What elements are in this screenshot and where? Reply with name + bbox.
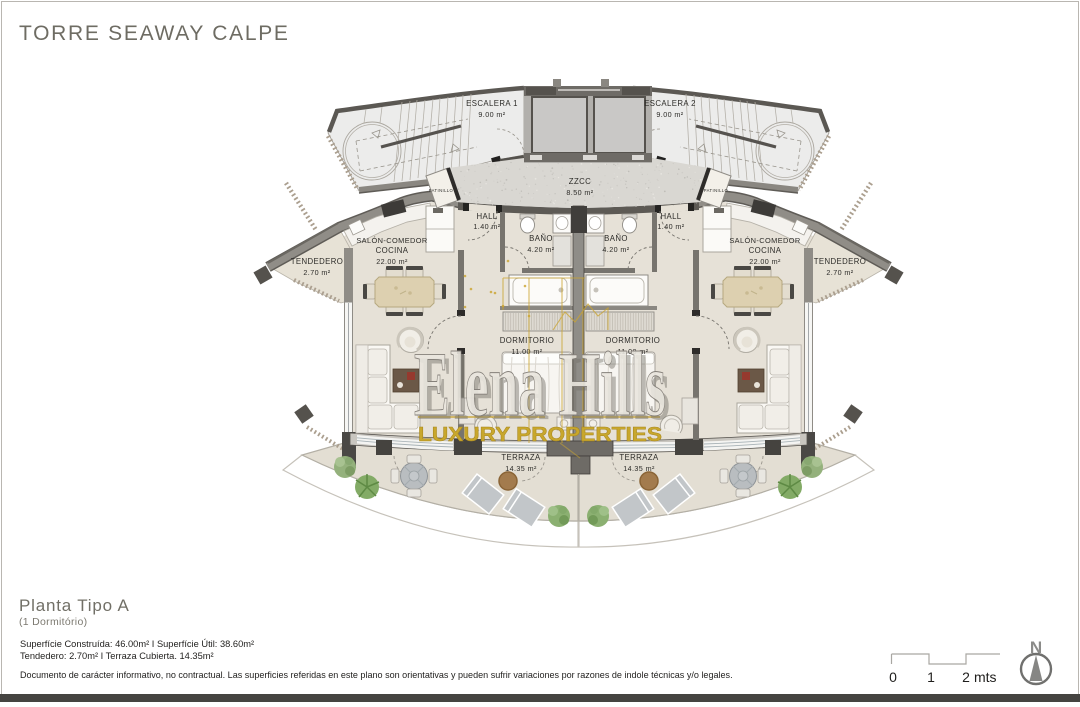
- svg-text:TORRE SEAWAY CALPE: TORRE SEAWAY CALPE: [19, 22, 290, 45]
- svg-text:mts: mts: [974, 669, 997, 685]
- svg-text:ZZCC: ZZCC: [569, 177, 591, 186]
- svg-text:0: 0: [889, 669, 897, 685]
- svg-text:HALL: HALL: [476, 212, 497, 221]
- svg-text:2: 2: [962, 669, 970, 685]
- svg-text:22.00 m²: 22.00 m²: [376, 257, 408, 266]
- svg-text:PATINILLO: PATINILLO: [429, 188, 454, 193]
- svg-text:BAÑO: BAÑO: [529, 234, 553, 243]
- svg-text:ESCALERA 2: ESCALERA 2: [644, 99, 696, 108]
- svg-text:(1 Dormitório): (1 Dormitório): [19, 616, 87, 628]
- svg-text:SALÓN-COMEDOR: SALÓN-COMEDOR: [356, 236, 427, 245]
- svg-text:COCINA: COCINA: [376, 246, 409, 255]
- svg-text:2.70 m²: 2.70 m²: [826, 268, 853, 277]
- svg-text:Documento de carácter informat: Documento de carácter informativo, no co…: [20, 670, 733, 680]
- svg-text:TERRAZA: TERRAZA: [619, 453, 659, 462]
- svg-text:14.35 m²: 14.35 m²: [623, 464, 655, 473]
- svg-text:LUXURY PROPERTIES: LUXURY PROPERTIES: [418, 424, 662, 446]
- svg-text:HALL: HALL: [660, 212, 681, 221]
- svg-text:PATINILLO: PATINILLO: [704, 188, 729, 193]
- svg-text:COCINA: COCINA: [749, 246, 782, 255]
- svg-text:22.00 m²: 22.00 m²: [749, 257, 781, 266]
- svg-text:2.70 m²: 2.70 m²: [303, 268, 330, 277]
- svg-text:1: 1: [927, 669, 935, 685]
- svg-text:Elena Hills: Elena Hills: [414, 333, 666, 435]
- svg-text:BAÑO: BAÑO: [604, 234, 628, 243]
- svg-text:1.40 m²: 1.40 m²: [473, 222, 500, 231]
- svg-text:TERRAZA: TERRAZA: [501, 453, 541, 462]
- svg-text:ESCALERA 1: ESCALERA 1: [466, 99, 518, 108]
- svg-text:Superfície Construída: 46.00m²: Superfície Construída: 46.00m² I Superfí…: [20, 639, 254, 649]
- svg-text:Planta Tipo A: Planta Tipo A: [19, 596, 130, 615]
- svg-text:1.40 m²: 1.40 m²: [657, 222, 684, 231]
- svg-text:4.20 m²: 4.20 m²: [602, 245, 629, 254]
- svg-text:9.00 m²: 9.00 m²: [478, 110, 505, 119]
- svg-text:TENDEDERO: TENDEDERO: [814, 257, 867, 266]
- svg-text:9.00 m²: 9.00 m²: [656, 110, 683, 119]
- svg-text:SALÓN-COMEDOR: SALÓN-COMEDOR: [729, 236, 800, 245]
- svg-text:TENDEDERO: TENDEDERO: [291, 257, 344, 266]
- svg-text:8.50 m²: 8.50 m²: [566, 188, 593, 197]
- svg-text:Tendedero: 2.70m² I Terraza Cu: Tendedero: 2.70m² I Terraza Cubierta. 14…: [20, 651, 214, 661]
- svg-text:14.35 m²: 14.35 m²: [505, 464, 537, 473]
- svg-text:4.20 m²: 4.20 m²: [527, 245, 554, 254]
